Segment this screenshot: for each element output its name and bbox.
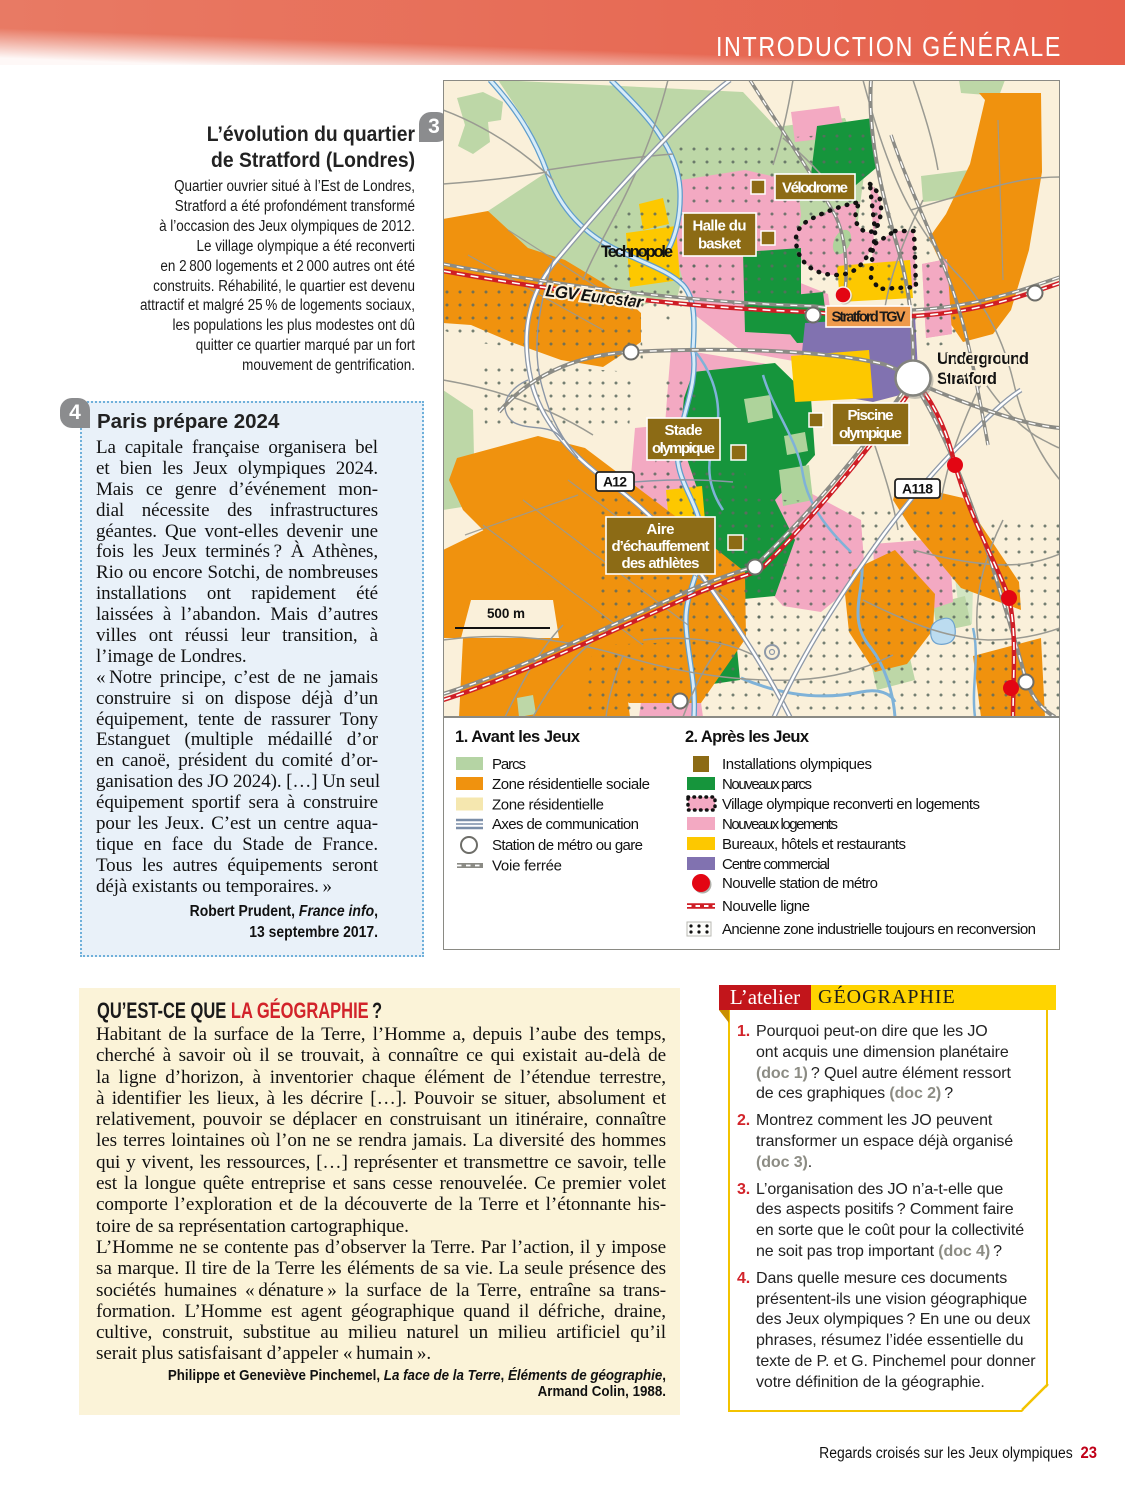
svg-text:Piscine: Piscine (848, 407, 894, 424)
svg-text:A118: A118 (902, 481, 933, 497)
svg-text:Stratford: Stratford (937, 370, 997, 388)
svg-text:Zone résidentielle sociale: Zone résidentielle sociale (492, 776, 650, 793)
svg-text:Nouvelle station de métro: Nouvelle station de métro (722, 875, 878, 892)
svg-text:Halle du: Halle du (693, 218, 747, 235)
svg-text:Aire: Aire (647, 521, 675, 538)
svg-text:A12: A12 (603, 474, 627, 490)
svg-text:Station de métro ou gare: Station de métro ou gare (492, 837, 643, 854)
svg-text:Parcs: Parcs (492, 756, 526, 773)
svg-text:Technopole: Technopole (601, 243, 673, 261)
svg-text:Centre commercial: Centre commercial (722, 856, 830, 873)
svg-text:Underground: Underground (937, 350, 1029, 368)
svg-text:1. Avant les Jeux: 1. Avant les Jeux (455, 728, 581, 746)
svg-text:Vélodrome: Vélodrome (782, 180, 848, 197)
svg-text:d’échauffement: d’échauffement (612, 538, 710, 555)
svg-text:Nouvelle ligne: Nouvelle ligne (722, 898, 810, 915)
svg-text:Installations olympiques: Installations olympiques (722, 756, 872, 773)
svg-text:Nouveaux parcs: Nouveaux parcs (722, 776, 812, 793)
svg-text:olympique: olympique (652, 440, 715, 457)
svg-text:Stade: Stade (665, 422, 703, 439)
svg-text:Zone résidentielle: Zone résidentielle (492, 797, 604, 814)
svg-text:Village olympique reconverti e: Village olympique reconverti en logement… (722, 796, 980, 813)
svg-text:Nouveaux logements: Nouveaux logements (722, 816, 838, 833)
svg-text:2. Après les Jeux: 2. Après les Jeux (685, 728, 810, 746)
svg-text:des athlètes: des athlètes (622, 555, 700, 572)
svg-text:Axes de communication: Axes de communication (492, 816, 639, 833)
svg-text:Stratford TGV: Stratford TGV (832, 310, 906, 326)
svg-text:olympique: olympique (839, 425, 902, 442)
svg-text:Voie ferrée: Voie ferrée (492, 858, 562, 875)
svg-text:Ancienne zone industrielle tou: Ancienne zone industrielle toujours en r… (722, 921, 1036, 938)
svg-text:basket: basket (698, 236, 741, 253)
svg-text:500 m: 500 m (487, 606, 525, 621)
svg-text:Bureaux, hôtels et restaurants: Bureaux, hôtels et restaurants (722, 836, 906, 853)
